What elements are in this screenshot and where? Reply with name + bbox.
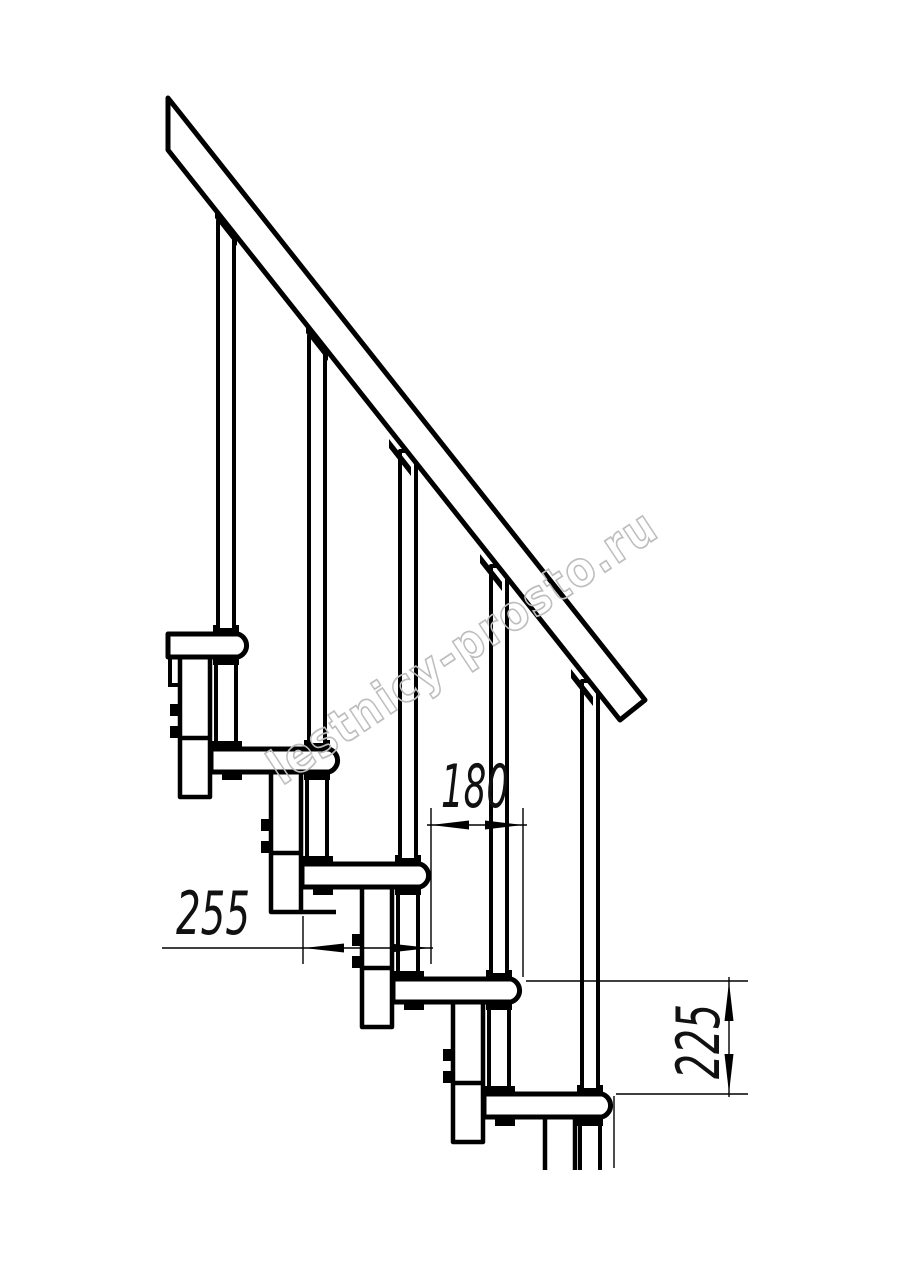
stringer-plate-1 — [170, 656, 210, 797]
support-rod-3 — [398, 886, 418, 979]
support-rod-4 — [489, 1001, 509, 1094]
tread-4 — [393, 979, 520, 1002]
plate-tab — [352, 956, 362, 968]
plate-tab — [261, 841, 271, 853]
dimension-label-255: 255 — [176, 879, 250, 949]
tread-5 — [484, 1094, 611, 1117]
support-rod-1 — [216, 656, 236, 749]
stringer-plate-4 — [443, 1001, 483, 1142]
plate-tab — [170, 726, 180, 738]
rod-base-collar — [391, 971, 424, 980]
rod-base-collar — [209, 741, 242, 750]
baluster-5 — [582, 681, 598, 1090]
stringer-plate-3 — [352, 886, 392, 1027]
plate-tab — [352, 934, 362, 946]
baluster-2 — [309, 336, 325, 745]
dimension-label-180: 180 — [441, 752, 509, 822]
plate-tab — [261, 819, 271, 831]
plate-body — [362, 886, 392, 1027]
arrowhead-left-icon — [304, 944, 344, 953]
drawing-page: 255 180 225 lestnicy-prosto.ru — [0, 0, 914, 1280]
rod-base-collar — [482, 1086, 515, 1095]
tread-1 — [168, 634, 247, 657]
dimension-going: 180 — [427, 752, 527, 977]
dimension-rise: 225 — [526, 977, 748, 1168]
stringer-plate-5-partial — [545, 1117, 575, 1170]
plate-tab — [170, 704, 180, 716]
plate-body — [180, 656, 210, 797]
rod-base-collar — [300, 856, 333, 865]
dimension-label-225: 225 — [664, 1004, 734, 1079]
technical-drawing-svg: 255 180 225 lestnicy-prosto.ru — [0, 0, 914, 1280]
baluster-1 — [218, 221, 234, 630]
plate-body — [453, 1001, 483, 1142]
tread-3 — [302, 864, 429, 887]
support-rod-2 — [307, 771, 327, 864]
plate-tab — [443, 1049, 453, 1061]
plate-tab — [443, 1071, 453, 1083]
